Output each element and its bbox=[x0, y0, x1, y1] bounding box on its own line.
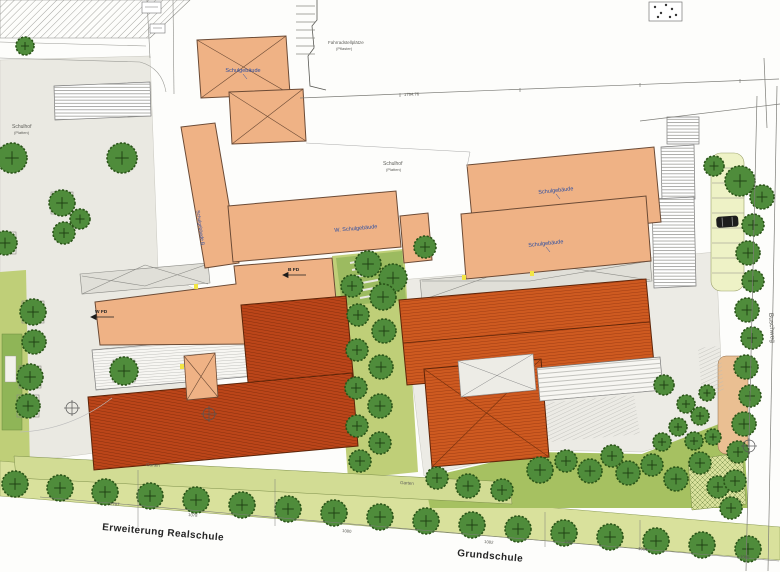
tree-icon bbox=[426, 467, 448, 489]
tree-icon bbox=[456, 474, 480, 498]
dim-1078: 1078 bbox=[188, 512, 198, 518]
tree-icon bbox=[346, 415, 368, 437]
dim-1082: 1082 bbox=[484, 539, 494, 545]
tree-icon bbox=[736, 241, 760, 265]
tree-icon bbox=[724, 470, 746, 492]
dim-1087: 1087 bbox=[564, 539, 574, 545]
tree-icon bbox=[616, 461, 640, 485]
b-fd-label: B FD bbox=[288, 267, 300, 273]
tree-icon bbox=[107, 143, 137, 173]
garten-right-label: Garten bbox=[400, 480, 415, 486]
car-icon bbox=[716, 215, 739, 228]
tree-icon bbox=[704, 156, 724, 176]
tree-icon bbox=[137, 483, 163, 509]
tree-icon bbox=[685, 432, 703, 450]
tree-icon bbox=[345, 377, 367, 399]
tree-icon bbox=[735, 298, 759, 322]
tree-icon bbox=[654, 375, 674, 395]
tree-icon bbox=[370, 284, 396, 310]
tree-icon bbox=[355, 251, 381, 277]
tree-icon bbox=[732, 412, 756, 436]
tree-icon bbox=[653, 433, 671, 451]
tree-icon bbox=[691, 407, 709, 425]
dim-1084: 1084 bbox=[638, 546, 648, 552]
tree-icon bbox=[699, 385, 715, 401]
tree-icon bbox=[2, 471, 28, 497]
dim-1080: 1080 bbox=[342, 528, 352, 534]
tree-icon bbox=[341, 275, 363, 297]
sandbox bbox=[5, 356, 16, 382]
tree-icon bbox=[677, 395, 695, 413]
tree-icon bbox=[734, 355, 758, 379]
tree-icon bbox=[578, 459, 602, 483]
tree-icon bbox=[321, 500, 347, 526]
tree-icon bbox=[20, 299, 46, 325]
dim-2787: 2787 bbox=[110, 501, 120, 507]
tree-icon bbox=[491, 479, 513, 501]
tree-icon bbox=[53, 222, 75, 244]
tree-icon bbox=[110, 357, 138, 385]
tree-icon bbox=[689, 452, 711, 474]
tree-icon bbox=[372, 319, 396, 343]
tree-icon bbox=[413, 508, 439, 534]
svg-text:(Pflaster): (Pflaster) bbox=[336, 46, 353, 51]
svg-text:(Platten): (Platten) bbox=[14, 130, 30, 135]
tree-icon bbox=[641, 454, 663, 476]
tree-icon bbox=[347, 304, 369, 326]
tree-icon bbox=[555, 450, 577, 472]
tree-icon bbox=[346, 339, 368, 361]
shelter-building bbox=[54, 82, 151, 120]
tree-icon bbox=[741, 327, 763, 349]
site-plan-canvas: Schulhof (Platten) Schulhof (Platten) Fa… bbox=[0, 0, 780, 572]
tree-icon bbox=[229, 492, 255, 518]
tree-icon bbox=[367, 504, 393, 530]
tree-icon bbox=[720, 497, 742, 519]
tree-icon bbox=[705, 429, 721, 445]
tree-icon bbox=[664, 467, 688, 491]
garten-left-label: Garten bbox=[146, 462, 161, 468]
tree-icon bbox=[669, 418, 687, 436]
tree-icon bbox=[727, 441, 749, 463]
tree-icon bbox=[742, 214, 764, 236]
tree-icon bbox=[47, 475, 73, 501]
tree-icon bbox=[22, 330, 46, 354]
tree-icon bbox=[183, 487, 209, 513]
tree-icon bbox=[414, 236, 436, 258]
svg-text:(Platten): (Platten) bbox=[386, 167, 402, 172]
tree-icon bbox=[369, 432, 391, 454]
tree-icon bbox=[459, 512, 485, 538]
tree-icon bbox=[16, 37, 34, 55]
tree-icon bbox=[0, 231, 17, 255]
tree-icon bbox=[369, 355, 393, 379]
tree-icon bbox=[49, 190, 75, 216]
fahrrad-label: Fahrradstellplätze bbox=[328, 40, 364, 45]
legend-box-small-1 bbox=[142, 2, 161, 13]
tree-icon bbox=[527, 457, 553, 483]
tree-icon bbox=[275, 496, 301, 522]
tree-icon bbox=[17, 364, 43, 390]
tree-icon bbox=[16, 394, 40, 418]
legend-box-small-2 bbox=[150, 24, 165, 33]
tree-icon bbox=[368, 394, 392, 418]
dim-1088: 1088 bbox=[740, 554, 750, 560]
site-plan: Schulhof (Platten) Schulhof (Platten) Fa… bbox=[0, 0, 780, 572]
tree-icon bbox=[750, 185, 774, 209]
w-fd-label: W FD bbox=[95, 309, 108, 315]
building-a-label: Schulgebäude bbox=[225, 68, 260, 74]
dim-north: 1794.76 bbox=[404, 91, 420, 97]
tree-icon bbox=[349, 450, 371, 472]
